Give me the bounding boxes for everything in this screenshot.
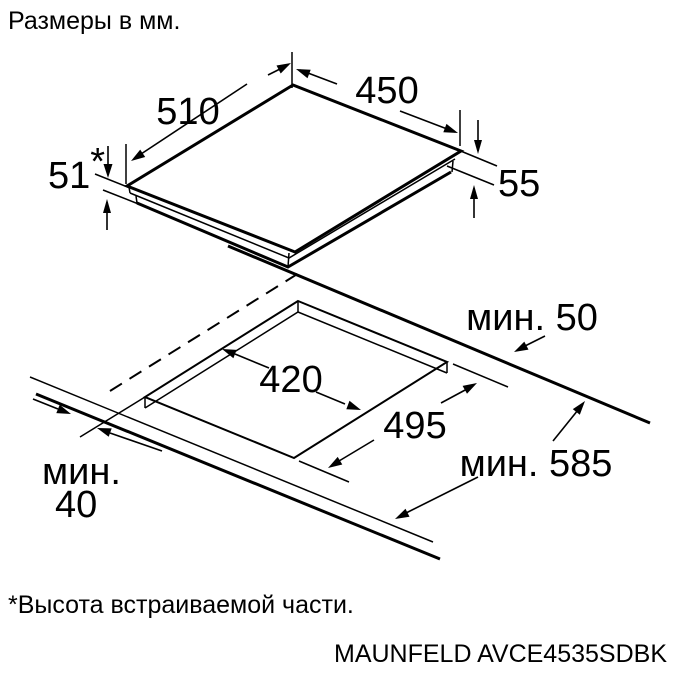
- arrowhead: [395, 509, 410, 519]
- dim-width-450: 450: [296, 69, 458, 133]
- model-label: MAUNFELD AVCE4535SDBK: [334, 640, 667, 668]
- dim-width-label: 450: [355, 70, 418, 112]
- extension-tick-51-bottom: [103, 190, 141, 205]
- worktop-cutout-drawing: 420 495 мин. 50 мин. 585: [30, 246, 650, 559]
- arrowhead: [470, 185, 478, 199]
- arrowhead: [222, 349, 237, 358]
- arrowhead: [514, 342, 529, 352]
- arrowhead: [296, 69, 311, 78]
- dim-cutout-width-420: 420: [222, 349, 361, 410]
- arrowhead: [328, 457, 342, 468]
- dim-depth-label: 510: [156, 91, 219, 133]
- dim-cutout-width-label: 420: [259, 359, 322, 401]
- hob-base-connector-front: [288, 253, 289, 267]
- arrowhead: [443, 124, 458, 133]
- arrowhead: [97, 428, 112, 437]
- min-worktop-depth-label: мин. 585: [460, 443, 613, 485]
- dim-edge-height-label: 55: [498, 163, 540, 205]
- arrowhead: [573, 401, 585, 415]
- extension-tick-55-bottom: [447, 166, 494, 185]
- min-front-clearance-value: 40: [55, 484, 97, 526]
- hob-base-connector-left: [136, 196, 137, 203]
- dim-depth-510: 510: [131, 63, 291, 161]
- arrowhead: [474, 140, 482, 154]
- dim-line: [441, 389, 467, 403]
- dim-edge-height-55: 55: [470, 120, 540, 218]
- arrowhead: [463, 383, 477, 394]
- footnote: *Высота встраиваемой части.: [8, 591, 354, 619]
- arrowhead: [346, 401, 361, 410]
- extension-line-495-top: [453, 364, 508, 387]
- hob-base-connector-right: [452, 161, 453, 172]
- arrowhead: [131, 150, 145, 161]
- dim-built-in-height-51: 51*: [48, 141, 113, 230]
- dimension-diagram-page: Размеры в мм. 510: [0, 0, 674, 674]
- dimension-diagram: Размеры в мм. 510: [0, 0, 674, 674]
- dim-line: [339, 440, 374, 461]
- dim-cutout-depth-495: 495: [328, 383, 477, 468]
- dim-cutout-depth-label: 495: [383, 405, 446, 447]
- arrowhead: [103, 199, 111, 213]
- dim-built-in-height-label: 51*: [48, 141, 105, 197]
- dim-line: [553, 410, 578, 441]
- hob-glass-bottom-edge: [130, 159, 455, 258]
- arrowhead: [277, 63, 292, 74]
- hob-drawing: 510 450 51* 55: [48, 52, 540, 267]
- min-back-clearance-label: мин. 50: [466, 297, 598, 339]
- extension-tick-55-top: [451, 147, 497, 166]
- dim-min-back-clearance: мин. 50: [466, 297, 598, 352]
- page-title: Размеры в мм.: [8, 7, 180, 35]
